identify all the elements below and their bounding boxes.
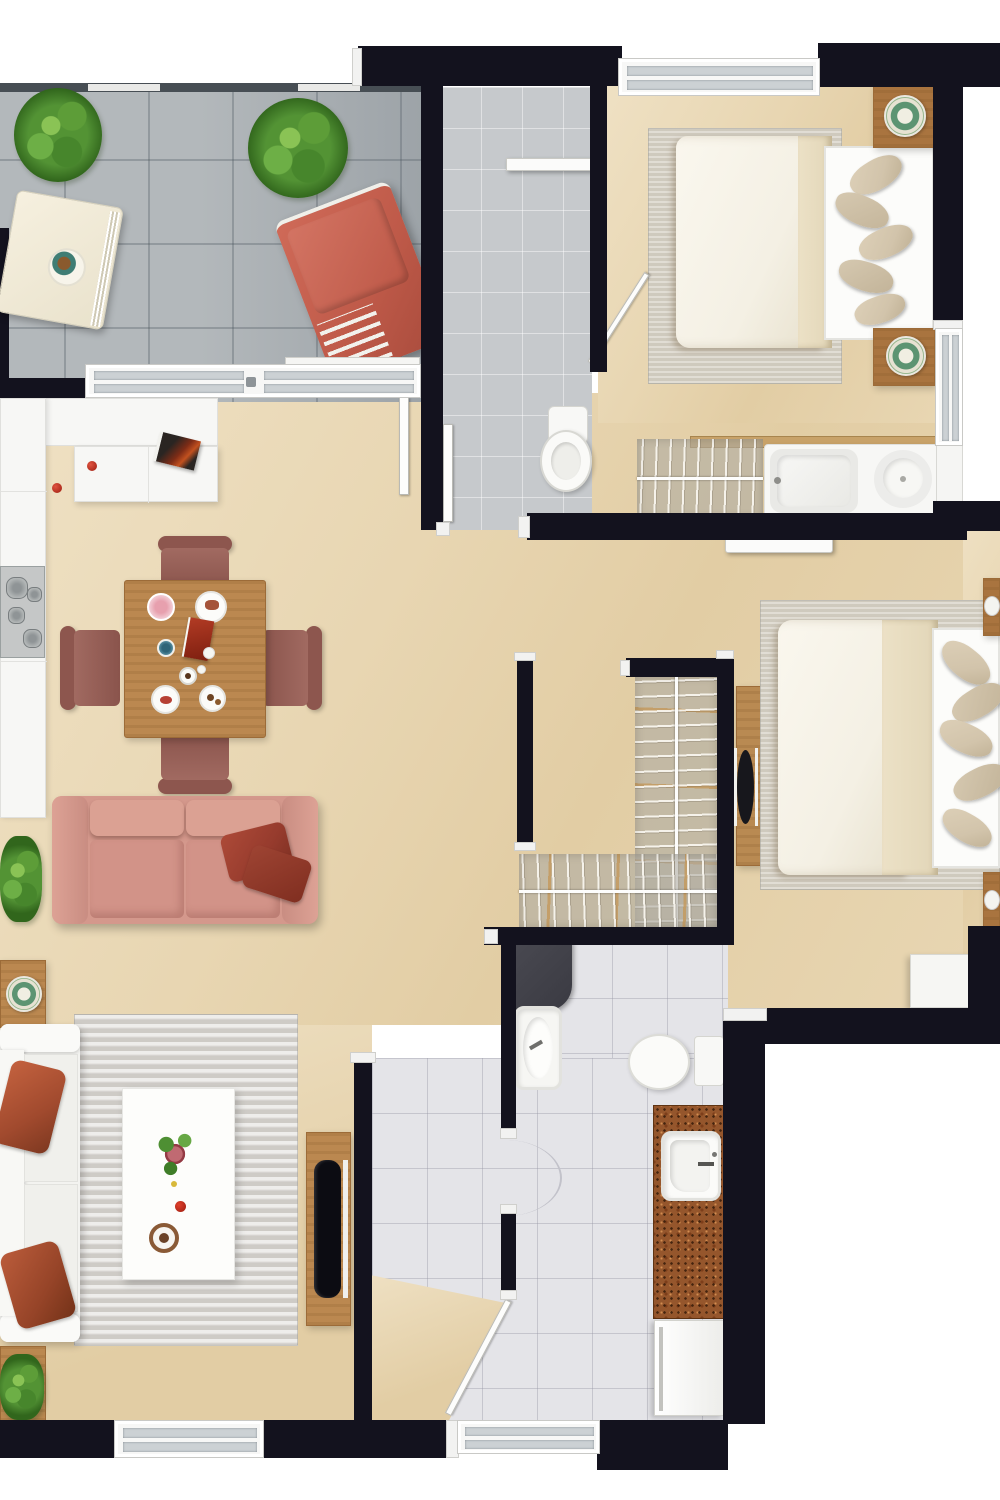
round-basin <box>874 450 932 508</box>
lounger-tray <box>45 245 89 289</box>
wall-cap <box>500 1128 517 1139</box>
espresso-cup <box>179 667 197 685</box>
window-glass <box>942 335 949 441</box>
window-glass <box>465 1440 594 1449</box>
wall-cap <box>518 516 530 538</box>
faucet-dot <box>712 1152 717 1157</box>
window-glass <box>94 384 244 393</box>
wall-bedroom2-right-stub <box>968 926 1000 1012</box>
laundry-door-leaf <box>399 397 409 495</box>
living-plant-icon <box>0 836 42 922</box>
tomato-icon <box>87 461 97 471</box>
sofa-back-cushion <box>90 800 184 836</box>
burner-icon <box>27 587 42 602</box>
wall-cap <box>500 1290 517 1300</box>
window-glass <box>94 371 244 380</box>
saucer <box>197 665 206 674</box>
saucer <box>203 647 215 659</box>
counter-seam <box>1 491 47 492</box>
railing-post <box>88 84 160 91</box>
wall-top-right <box>818 43 1000 87</box>
nightstand-knob-icon <box>984 890 1000 910</box>
espresso-icon <box>185 673 191 679</box>
toilet-2-bowl <box>628 1034 690 1090</box>
wall-kitchen-corner <box>0 378 88 398</box>
tv-flat-icon <box>314 1160 341 1298</box>
bathtub-inner <box>777 455 851 507</box>
wall-living-divider <box>354 1054 372 1424</box>
vanity-sink-inset <box>661 1131 721 1201</box>
bathtub-faucet-icon <box>774 477 781 484</box>
wall-bathroom2-left-lower <box>501 1212 516 1297</box>
wall-closet-right <box>717 658 734 945</box>
plate-pink <box>147 593 175 621</box>
basin-drain-icon <box>900 476 906 482</box>
wall-stub-bedroom1-right <box>933 85 963 325</box>
decor-dot <box>175 1201 186 1212</box>
nightstand-knob-icon <box>984 596 1000 616</box>
exterior-right <box>963 83 1000 503</box>
washbasin-2 <box>514 1006 562 1090</box>
washbasin-bowl <box>523 1017 553 1079</box>
wall-top-left <box>358 46 622 86</box>
toilet-1-seat <box>551 442 581 480</box>
wall-bottom-1 <box>0 1420 117 1458</box>
dining-chair-back <box>306 626 322 710</box>
bed2-blanket <box>882 620 938 875</box>
wall-balcony-laundry <box>421 48 443 530</box>
wall-kitchen-east <box>723 1022 765 1424</box>
wall-mid-horizontal-right <box>933 501 1000 531</box>
wall-cap <box>514 842 536 851</box>
wall-hall-freestanding <box>517 660 533 845</box>
laundry-shelf <box>506 158 594 171</box>
washer-appliance <box>654 1320 724 1416</box>
dining-chair-seat <box>161 732 229 780</box>
burner-icon <box>6 577 28 599</box>
dining-chair-seat <box>74 630 120 706</box>
decor-dot <box>171 1181 177 1187</box>
wall-cap <box>716 650 734 659</box>
window-living-bottom <box>114 1420 264 1458</box>
wall-mid-horizontal <box>527 513 967 540</box>
dining-table <box>124 580 266 738</box>
window-glass <box>123 1442 257 1452</box>
wall-laundry-bedroom1 <box>590 85 607 372</box>
window-glass <box>264 384 414 393</box>
window-kitchen-balcony <box>85 364 421 398</box>
rack-rail <box>637 477 763 480</box>
wall-cap <box>484 929 498 944</box>
counter-seam <box>148 447 149 503</box>
coaster-cup-icon <box>149 1223 179 1253</box>
burner-icon <box>23 629 42 648</box>
cookie-icon <box>207 694 214 701</box>
wall-bottom-2 <box>261 1420 451 1458</box>
window-glass <box>264 371 414 380</box>
wall-cap <box>350 1052 376 1063</box>
drying-rack <box>637 439 763 519</box>
wall-bottom-3 <box>597 1420 728 1470</box>
floor-plan <box>0 0 1000 1500</box>
railing-post <box>298 84 360 91</box>
faucet-icon <box>698 1162 714 1166</box>
counter-seam <box>1 661 47 662</box>
cup-blue <box>157 639 175 657</box>
window-glass <box>465 1427 594 1436</box>
flower-centerpiece-icon <box>153 1131 197 1179</box>
window-glass <box>123 1428 257 1438</box>
nightstand-plate-icon <box>884 95 926 137</box>
dining-chair-seat <box>262 630 308 706</box>
wall-bathroom2-left-upper <box>501 943 516 1133</box>
balcony-palm-icon <box>248 98 348 198</box>
wall-cap <box>436 522 450 536</box>
door-handle-trim <box>734 748 737 826</box>
wall-cap <box>514 652 536 661</box>
balcony-plant-icon <box>14 88 102 182</box>
closet-rail <box>519 890 719 893</box>
window-bedroom1-right <box>935 328 963 446</box>
washer-handle <box>659 1327 663 1411</box>
tv-stand-line <box>343 1160 348 1298</box>
nightstand-plate-icon <box>886 336 926 376</box>
wall-cap <box>500 1204 517 1214</box>
chaise-cushion <box>285 196 411 316</box>
wc-door-leaf <box>443 424 453 522</box>
plate-cookies <box>199 685 226 712</box>
tomato-icon <box>52 483 62 493</box>
toilet-2-tank <box>694 1036 724 1086</box>
bathtub <box>770 449 858 513</box>
toilet-1-bowl <box>540 430 592 492</box>
exterior-bottom-right <box>765 1046 1000 1500</box>
window-glass <box>952 335 959 441</box>
window-handle-icon <box>246 377 256 387</box>
door-handle-icon <box>737 750 754 824</box>
sofa-armrest <box>0 1024 80 1052</box>
plate-berries <box>151 685 180 714</box>
wall-closet-bottom <box>484 927 728 945</box>
wall-cap <box>723 1008 767 1021</box>
closet-rack-horizontal <box>519 854 719 928</box>
cooktop <box>0 566 45 658</box>
living-plant-icon <box>0 1354 44 1420</box>
window-entry-bottom <box>457 1420 600 1454</box>
sink-bowl <box>670 1140 710 1192</box>
wall-cap <box>620 660 630 676</box>
window-glass <box>627 80 813 90</box>
window-glass <box>627 66 813 76</box>
dining-chair-back <box>158 778 232 794</box>
side-table-plate-icon <box>6 976 42 1012</box>
cookie-icon <box>215 699 221 705</box>
window-bedroom1-top <box>618 58 820 96</box>
wall-cap <box>352 48 362 86</box>
dessert-icon <box>205 600 219 610</box>
sofa-armrest <box>52 796 88 924</box>
door-handle-trim <box>755 748 758 826</box>
sofa-seat-cushion <box>90 840 184 918</box>
cup-center <box>159 1233 169 1243</box>
berry-icon <box>160 696 172 704</box>
burner-icon <box>8 607 25 624</box>
coffee-table <box>122 1088 235 1280</box>
sun-lounger <box>0 190 124 331</box>
